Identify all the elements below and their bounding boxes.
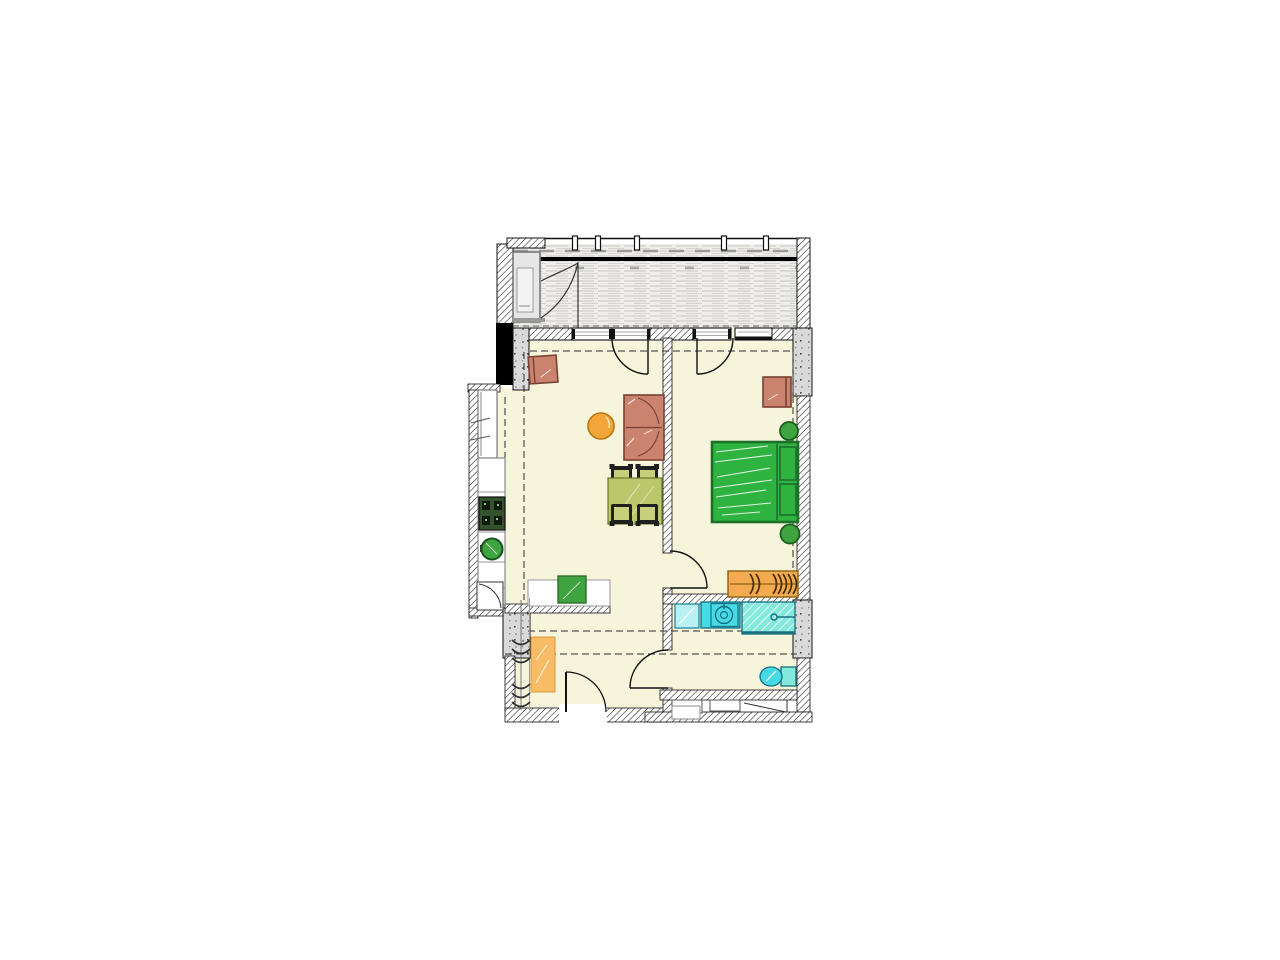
- window: [693, 328, 731, 340]
- pier-southwest: [503, 608, 530, 658]
- round-side-table: [588, 413, 614, 439]
- dining-chair: [636, 504, 660, 526]
- floor-plan-canvas: [0, 0, 1280, 960]
- wall-segment: [772, 328, 793, 340]
- wall-segment: [529, 328, 572, 340]
- pillow: [780, 484, 796, 515]
- window: [572, 328, 612, 340]
- corridor-window: [710, 700, 740, 711]
- window: [735, 328, 772, 340]
- corridor-south-wall: [645, 712, 812, 722]
- corridor-door-leaf: [744, 703, 786, 712]
- bedroom-armchair: [763, 377, 791, 407]
- kitchen-sideboard: [528, 576, 610, 606]
- railing-post: [764, 236, 769, 250]
- window: [612, 328, 650, 340]
- railing-post: [573, 236, 578, 250]
- plant: [780, 422, 798, 440]
- pier-northwest: [513, 328, 529, 390]
- kitchen-window-cabinet: [477, 582, 503, 610]
- hall-wardrobe: [531, 637, 555, 692]
- pier-northeast: [793, 328, 812, 396]
- living-armchair: [528, 355, 558, 384]
- balcony-cabinet: [513, 252, 545, 322]
- corner-sofa: [624, 395, 664, 460]
- shower: [742, 602, 795, 634]
- balcony-deck: [513, 244, 797, 330]
- stove: [479, 497, 505, 530]
- pier-southeast: [793, 600, 812, 658]
- floor-plan: [0, 0, 1280, 960]
- kitchen-sink: [480, 539, 503, 560]
- east-wall-lower: [797, 658, 810, 712]
- bedroom-wardrobe: [728, 571, 798, 597]
- double-bed: [712, 442, 798, 522]
- railing-post: [635, 236, 640, 250]
- washbasin: [701, 602, 740, 628]
- balcony-beam: [513, 257, 797, 261]
- plant: [781, 525, 800, 544]
- toilet: [760, 667, 796, 686]
- bathroom-south-wall: [660, 690, 797, 700]
- wall-black-corner: [496, 323, 513, 385]
- corridor-window-frame: [672, 706, 700, 719]
- balcony-wall-right: [797, 238, 810, 332]
- railing-post: [722, 236, 727, 250]
- dining-chair: [610, 504, 634, 526]
- room-balcony: [497, 236, 810, 332]
- balcony-wall-top-left: [507, 238, 545, 248]
- balcony-wall-left: [497, 244, 513, 332]
- washing-machine: [675, 604, 699, 628]
- pillow: [780, 447, 796, 480]
- railing-post: [596, 236, 601, 250]
